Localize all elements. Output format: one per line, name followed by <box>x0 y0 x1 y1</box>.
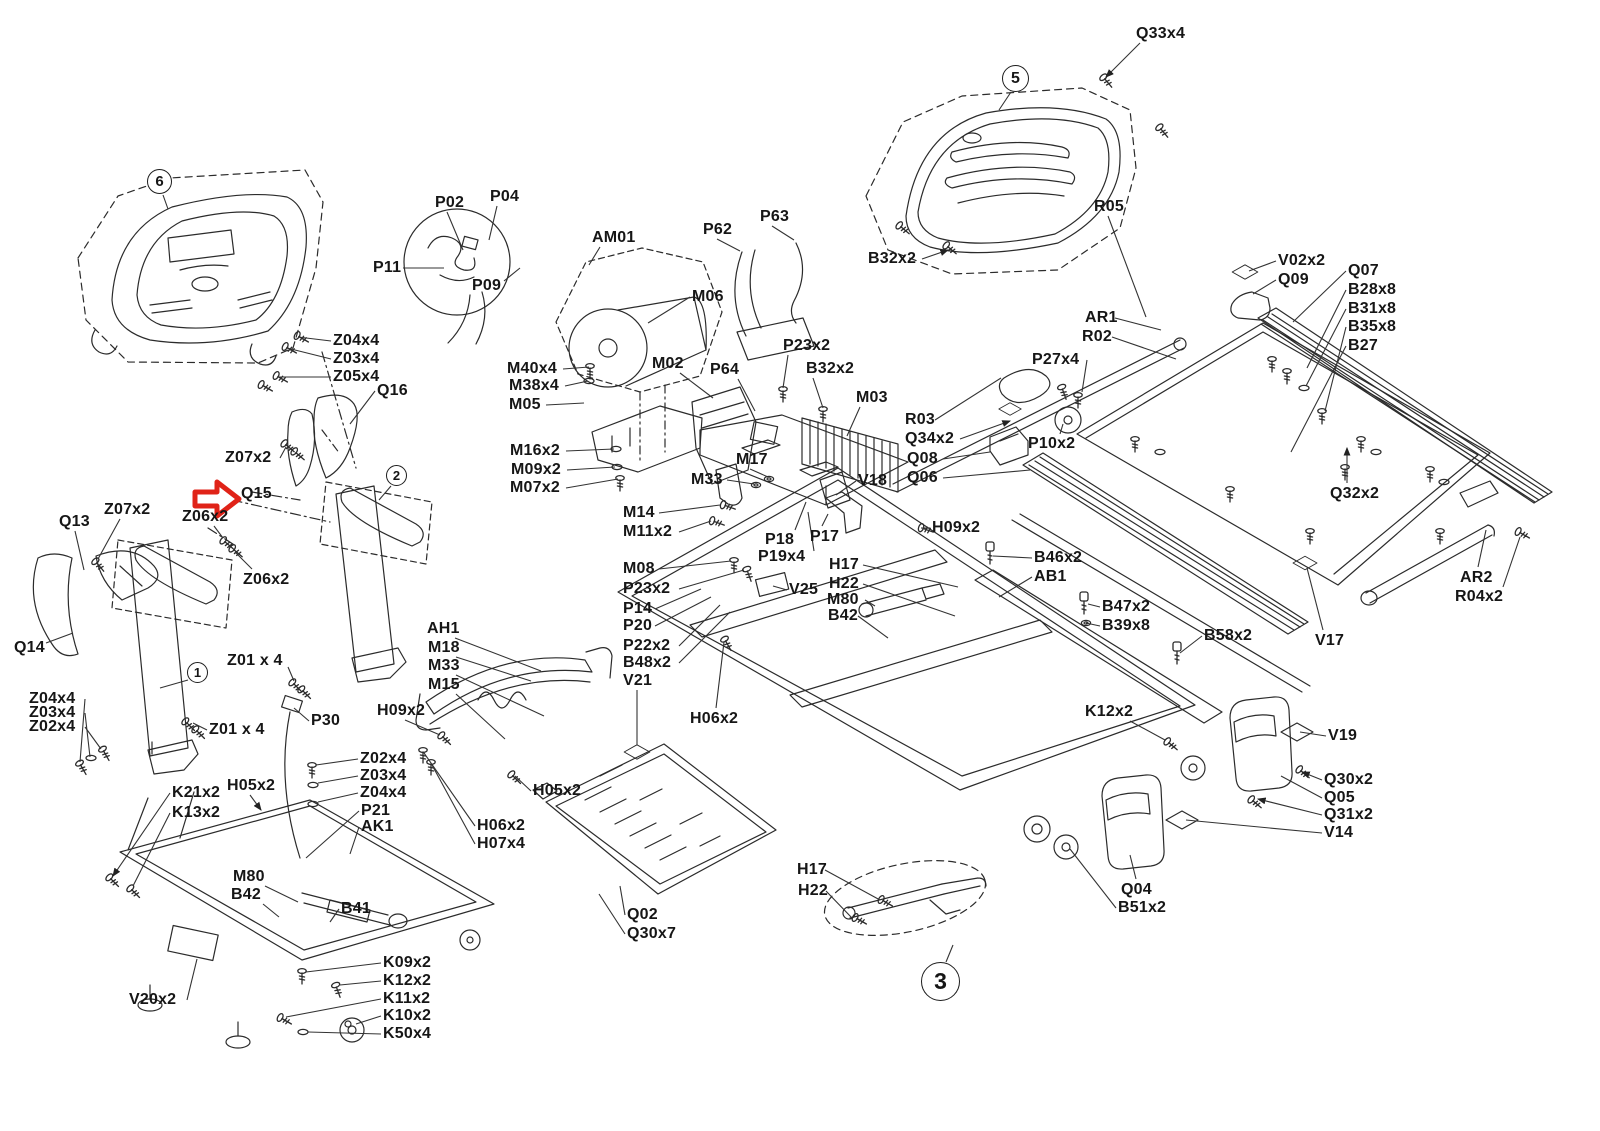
leader-line <box>287 348 331 359</box>
part-label-h17: H17 <box>797 861 827 879</box>
part-label-q05: Q05 <box>1324 789 1355 807</box>
leader-line <box>316 759 358 765</box>
part-label-k09x2: K09x2 <box>383 954 431 972</box>
leader-line <box>822 514 828 526</box>
leader-line <box>46 633 73 643</box>
part-label-b42: B42 <box>828 607 858 625</box>
leader-line <box>565 381 588 386</box>
part-label-q08: Q08 <box>907 450 938 468</box>
part-label-r05: R05 <box>1094 198 1124 216</box>
leader-line <box>340 981 381 985</box>
part-label-v14: V14 <box>1324 824 1353 842</box>
part-label-k10x2: K10x2 <box>383 1007 431 1025</box>
leader-line <box>659 505 720 513</box>
leader-line <box>589 247 600 265</box>
part-label-q31x2: Q31x2 <box>1324 806 1373 824</box>
leader-line <box>922 250 948 259</box>
leader-line <box>1503 537 1520 587</box>
leader-line <box>1060 424 1063 434</box>
leader-line <box>379 486 391 500</box>
leader-line <box>935 378 1001 420</box>
leader-line <box>160 680 188 688</box>
part-label-q06: Q06 <box>907 469 938 487</box>
leader-line <box>1088 604 1100 607</box>
part-label-b28x8: B28x8 <box>1348 281 1396 299</box>
leader-line <box>825 870 880 900</box>
leader-line <box>187 959 197 1000</box>
leader-line <box>1306 309 1346 386</box>
part-label-p09: P09 <box>472 277 501 295</box>
part-label-b48x2: B48x2 <box>623 654 671 672</box>
part-label-z07x2: Z07x2 <box>104 501 150 519</box>
part-label-b46x2: B46x2 <box>1034 549 1082 567</box>
part-label-v18: V18 <box>858 472 887 490</box>
part-label-b41: B41 <box>341 900 371 918</box>
part-label-m15: M15 <box>428 676 460 694</box>
part-label-q32x2: Q32x2 <box>1330 485 1379 503</box>
part-label-v19: V19 <box>1328 727 1357 745</box>
part-label-m07x2: M07x2 <box>510 479 560 497</box>
leader-line <box>85 713 90 757</box>
leader-line <box>286 999 381 1017</box>
part-label-v20x2: V20x2 <box>129 991 176 1009</box>
part-label-z01x4: Z01 x 4 <box>227 652 283 670</box>
part-label-ar1: AR1 <box>1085 309 1118 327</box>
part-label-p30: P30 <box>311 712 340 730</box>
part-label-q07: Q07 <box>1348 262 1379 280</box>
leader-line <box>193 723 207 730</box>
part-label-m40x4: M40x4 <box>507 360 557 378</box>
leader-line <box>717 239 740 251</box>
part-label-b32x2: B32x2 <box>806 360 854 378</box>
part-label-b35x8: B35x8 <box>1348 318 1396 336</box>
part-label-p18: P18 <box>765 531 794 549</box>
leader-line <box>1300 732 1326 736</box>
part-label-p19x4: P19x4 <box>758 548 805 566</box>
leader-line <box>999 577 1032 597</box>
part-label-k11x2: K11x2 <box>383 990 430 1008</box>
part-label-ar2: AR2 <box>1460 569 1493 587</box>
part-label-m38x4: M38x4 <box>509 377 559 395</box>
leader-line <box>330 909 339 922</box>
leader-line <box>1086 623 1100 626</box>
leader-line <box>133 813 170 886</box>
leader-line <box>1070 849 1116 908</box>
leader-line <box>946 945 953 962</box>
leader-line <box>75 531 84 570</box>
leader-line <box>263 904 279 917</box>
leader-line <box>1186 820 1322 833</box>
part-label-z07x2: Z07x2 <box>225 449 271 467</box>
leader-line <box>795 502 806 530</box>
leader-line <box>265 886 298 902</box>
part-label-z03x4: Z03x4 <box>333 350 379 368</box>
leader-line <box>567 467 615 470</box>
leader-line <box>1325 327 1346 411</box>
part-label-ab1: AB1 <box>1034 568 1067 586</box>
part-label-p22x2: P22x2 <box>623 637 670 655</box>
leader-line <box>813 378 823 408</box>
part-label-q13: Q13 <box>59 513 90 531</box>
leader-line <box>1302 772 1322 780</box>
part-label-p20: P20 <box>623 617 652 635</box>
callout-circle-3: 3 <box>921 962 960 1001</box>
callout-circle-2: 2 <box>386 465 407 486</box>
part-label-z04x4: Z04x4 <box>360 784 406 802</box>
leader-line <box>943 452 990 459</box>
part-label-h07x4: H07x4 <box>477 835 525 853</box>
part-label-ak1: AK1 <box>361 818 394 836</box>
part-label-h09x2: H09x2 <box>377 702 425 720</box>
leader-line <box>620 886 625 915</box>
part-label-b42: B42 <box>231 886 261 904</box>
leader-line <box>356 1016 381 1024</box>
leader-line <box>350 827 359 854</box>
leader-line <box>163 195 168 209</box>
leader-line <box>308 1032 381 1034</box>
callout-circle-5: 5 <box>1002 65 1029 92</box>
part-label-m14: M14 <box>623 504 655 522</box>
part-label-z02x4: Z02x4 <box>29 718 75 736</box>
leader-line <box>1108 216 1146 317</box>
part-label-r04x2: R04x2 <box>1455 588 1503 606</box>
leader-line <box>1307 568 1323 630</box>
leader-line <box>1180 636 1202 653</box>
part-label-b39x8: B39x8 <box>1102 617 1150 635</box>
leader-line <box>566 479 618 488</box>
leader-line <box>566 449 614 451</box>
leader-line <box>456 657 531 681</box>
leader-line <box>960 421 1010 439</box>
leader-line <box>863 565 958 587</box>
leader-line <box>599 894 625 934</box>
part-label-z06x2: Z06x2 <box>182 508 228 526</box>
part-label-p04: P04 <box>490 188 519 206</box>
part-label-h22: H22 <box>798 882 828 900</box>
leader-line <box>288 667 294 681</box>
callout-circle-1: 1 <box>187 662 208 683</box>
part-label-m33: M33 <box>428 657 460 675</box>
leader-line <box>1253 280 1276 294</box>
part-label-m03: M03 <box>856 389 888 407</box>
leader-line <box>235 552 252 569</box>
leader-line <box>1106 43 1140 77</box>
leader-line <box>456 694 505 739</box>
leader-line <box>783 355 788 388</box>
leader-line <box>447 212 463 250</box>
part-label-m80: M80 <box>233 868 265 886</box>
part-label-v02x2: V02x2 <box>1278 252 1325 270</box>
part-label-q15: Q15 <box>241 485 272 503</box>
part-label-k12x2: K12x2 <box>383 972 431 990</box>
part-label-h05x2: H05x2 <box>533 782 581 800</box>
part-label-m11x2: M11x2 <box>623 523 672 541</box>
part-label-m05: M05 <box>509 396 541 414</box>
part-label-r02: R02 <box>1082 328 1112 346</box>
part-label-h05x2: H05x2 <box>227 777 275 795</box>
part-label-b31x8: B31x8 <box>1348 300 1396 318</box>
part-label-p23x2: P23x2 <box>783 337 830 355</box>
part-label-p64: P64 <box>710 361 739 379</box>
part-label-q09: Q09 <box>1278 271 1309 289</box>
part-label-p11: P11 <box>373 259 401 277</box>
leader-line <box>489 206 497 240</box>
callout-circle-6: 6 <box>147 169 172 194</box>
leader-line <box>727 480 754 484</box>
leader-line <box>318 776 358 783</box>
part-label-am01: AM01 <box>592 229 635 247</box>
leader-line <box>280 447 286 458</box>
leader-line <box>1478 530 1486 567</box>
leader-line <box>1249 261 1276 271</box>
part-label-m09x2: M09x2 <box>511 461 561 479</box>
part-label-p23x2: P23x2 <box>623 580 670 598</box>
part-label-q02: Q02 <box>627 906 658 924</box>
part-label-b32x2: B32x2 <box>868 250 916 268</box>
leader-line <box>1281 776 1322 798</box>
part-label-b27: B27 <box>1348 337 1378 355</box>
leader-line <box>1112 337 1176 359</box>
part-label-r03: R03 <box>905 411 935 429</box>
part-label-z03x4: Z03x4 <box>360 767 406 785</box>
leader-line <box>1130 855 1136 879</box>
leader-line <box>680 373 713 398</box>
part-label-b47x2: B47x2 <box>1102 598 1150 616</box>
leader-line <box>826 891 852 918</box>
leader-line <box>546 403 584 405</box>
part-label-z02x4: Z02x4 <box>360 750 406 768</box>
leader-line <box>773 586 787 590</box>
leader-line <box>424 753 475 826</box>
parts-diagram-page: Z04x4Z03x4Z05x4Q16P02P04P11P09AM01M06P62… <box>0 0 1600 1131</box>
part-label-p17: P17 <box>810 528 839 546</box>
leader-line <box>847 407 860 436</box>
leader-line <box>563 367 589 369</box>
part-label-h06x2: H06x2 <box>690 710 738 728</box>
part-label-m18: M18 <box>428 639 460 657</box>
part-label-b58x2: B58x2 <box>1204 627 1252 645</box>
leader-line <box>250 795 261 810</box>
part-label-z01x4: Z01 x 4 <box>209 721 265 739</box>
part-label-h17: H17 <box>829 556 859 574</box>
leader-line <box>306 963 381 972</box>
part-label-p63: P63 <box>760 208 789 226</box>
part-label-v25: V25 <box>789 581 818 599</box>
part-label-k13x2: K13x2 <box>172 804 220 822</box>
leader-line <box>772 226 794 240</box>
leader-line <box>679 570 744 589</box>
leader-line <box>298 337 331 341</box>
leader-line <box>679 605 720 646</box>
part-label-k50x4: K50x4 <box>383 1025 431 1043</box>
part-label-p10x2: P10x2 <box>1028 435 1075 453</box>
part-label-p27x4: P27x4 <box>1032 351 1079 369</box>
leader-line <box>432 765 475 844</box>
leader-line <box>738 379 755 411</box>
part-label-h06x2: H06x2 <box>477 817 525 835</box>
leader-line <box>659 561 731 569</box>
part-label-z04x4: Z04x4 <box>333 332 379 350</box>
leader-line <box>716 642 724 708</box>
leader-line <box>750 469 768 477</box>
leader-line <box>214 526 223 538</box>
part-label-q14: Q14 <box>14 639 45 657</box>
leader-line <box>1130 721 1165 740</box>
part-label-p14: P14 <box>623 600 652 618</box>
part-label-m33: M33 <box>691 471 723 489</box>
leader-line <box>405 720 440 735</box>
leader-line <box>1258 799 1322 815</box>
part-label-m08: M08 <box>623 560 655 578</box>
part-label-m06: M06 <box>692 288 724 306</box>
part-label-ah1: AH1 <box>427 620 460 638</box>
part-label-h09x2: H09x2 <box>932 519 980 537</box>
leader-line <box>1082 360 1087 392</box>
part-label-q30x2: Q30x2 <box>1324 771 1373 789</box>
leader-line <box>858 616 888 638</box>
part-label-q33x4: Q33x4 <box>1136 25 1185 43</box>
part-label-m17: M17 <box>736 451 768 469</box>
leader-line <box>515 776 531 791</box>
leader-line <box>865 600 875 606</box>
part-label-v17: V17 <box>1315 632 1344 650</box>
leader-line <box>836 481 856 495</box>
leader-line <box>679 521 711 532</box>
part-label-q34x2: Q34x2 <box>905 430 954 448</box>
part-label-q04: Q04 <box>1121 881 1152 899</box>
part-label-m16x2: M16x2 <box>510 442 560 460</box>
leader-line <box>1115 318 1161 330</box>
leader-line <box>98 519 120 559</box>
leader-line <box>648 297 690 323</box>
part-label-k21x2: K21x2 <box>172 784 220 802</box>
part-label-k12x2: K12x2 <box>1085 703 1133 721</box>
leader-line <box>80 699 85 762</box>
leader-line <box>504 268 520 281</box>
part-label-q30x7: Q30x7 <box>627 925 676 943</box>
part-label-v21: V21 <box>623 672 652 690</box>
part-label-p62: P62 <box>703 221 732 239</box>
leader-line <box>294 708 309 721</box>
leader-line <box>350 391 375 424</box>
leader-line <box>863 584 955 616</box>
leader-line <box>999 92 1011 110</box>
leader-line <box>993 556 1032 558</box>
part-label-m02: M02 <box>652 355 684 373</box>
part-label-z06x2: Z06x2 <box>243 571 289 589</box>
part-label-b51x2: B51x2 <box>1118 899 1166 917</box>
leader-line <box>318 793 358 802</box>
part-label-q16: Q16 <box>377 382 408 400</box>
part-label-z05x4: Z05x4 <box>333 368 379 386</box>
leader-line <box>455 638 541 671</box>
leader-line <box>113 793 170 876</box>
leader-line <box>943 470 1030 478</box>
part-label-p02: P02 <box>435 194 464 212</box>
